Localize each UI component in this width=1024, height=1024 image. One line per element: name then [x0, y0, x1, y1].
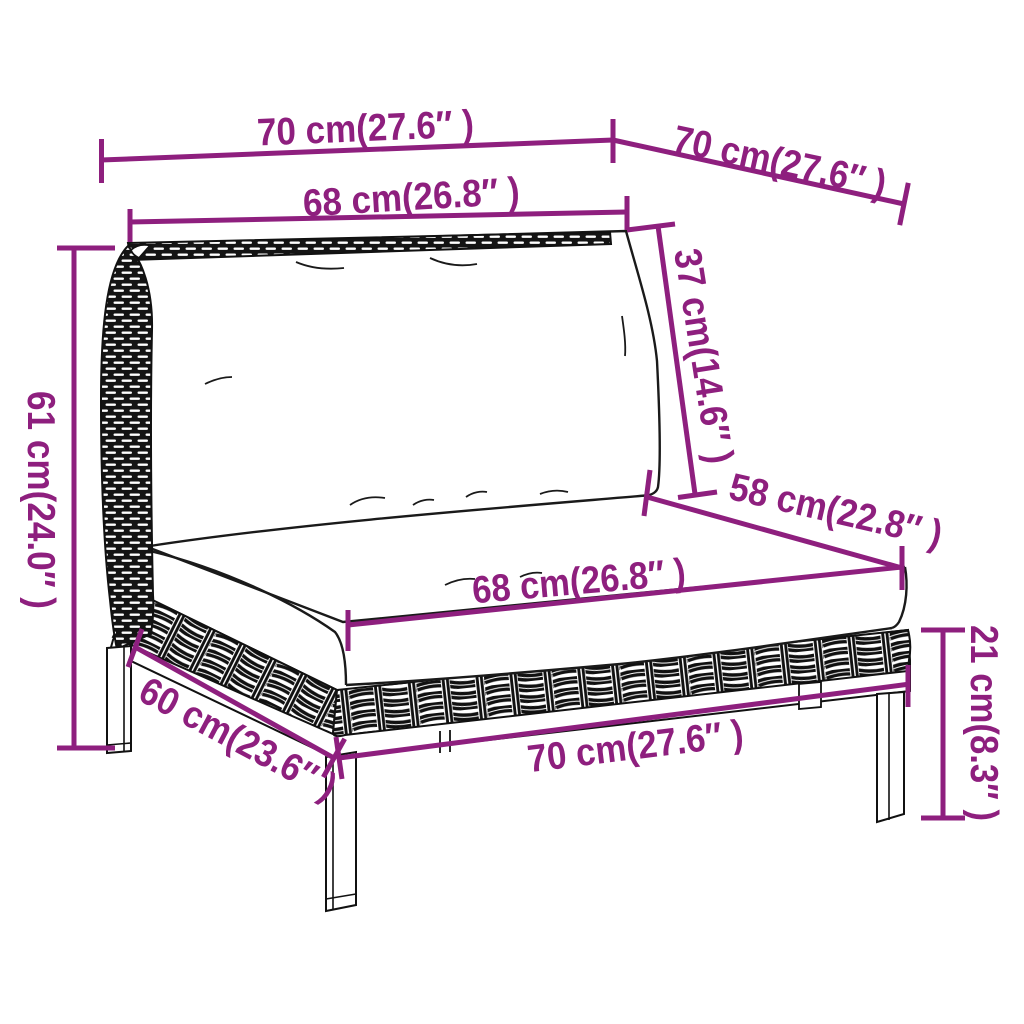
svg-text:61 cm(24.0″ ): 61 cm(24.0″ ) [19, 391, 62, 609]
svg-text:70 cm(27.6″ ): 70 cm(27.6″ ) [256, 102, 475, 154]
svg-text:21 cm(8.3″ ): 21 cm(8.3″ ) [962, 625, 1005, 821]
